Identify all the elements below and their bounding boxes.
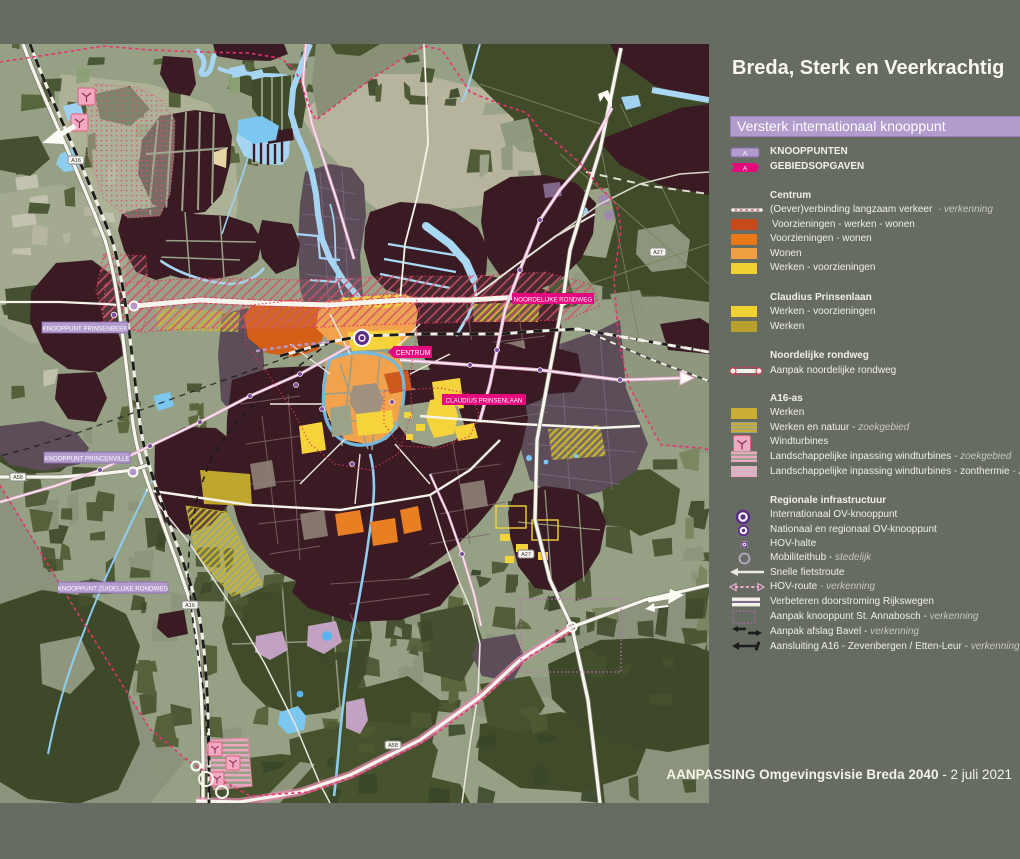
svg-text:NOORDELIJKE RONDWEG: NOORDELIJKE RONDWEG: [514, 297, 593, 304]
svg-text:A: A: [743, 151, 748, 158]
svg-text:A58: A58: [13, 475, 23, 481]
svg-text:A58: A58: [388, 743, 398, 749]
svg-text:A16: A16: [71, 158, 81, 164]
svg-text:KNOOPPUNT PRINCENVILLE: KNOOPPUNT PRINCENVILLE: [44, 456, 130, 463]
svg-text:CLAUDIUS PRINSENLAAN: CLAUDIUS PRINSENLAAN: [446, 398, 523, 405]
svg-text:A: A: [743, 166, 748, 173]
svg-text:A16: A16: [185, 603, 195, 609]
svg-text:KNOOPPUNT ZUIDELIJKE RONDWEG: KNOOPPUNT ZUIDELIJKE RONDWEG: [58, 586, 169, 593]
svg-text:KNOOPPUNT PRINSENBEEK: KNOOPPUNT PRINSENBEEK: [43, 326, 129, 333]
svg-text:CENTRUM: CENTRUM: [396, 350, 431, 357]
svg-text:A27: A27: [521, 552, 531, 558]
svg-text:A27: A27: [653, 250, 663, 256]
